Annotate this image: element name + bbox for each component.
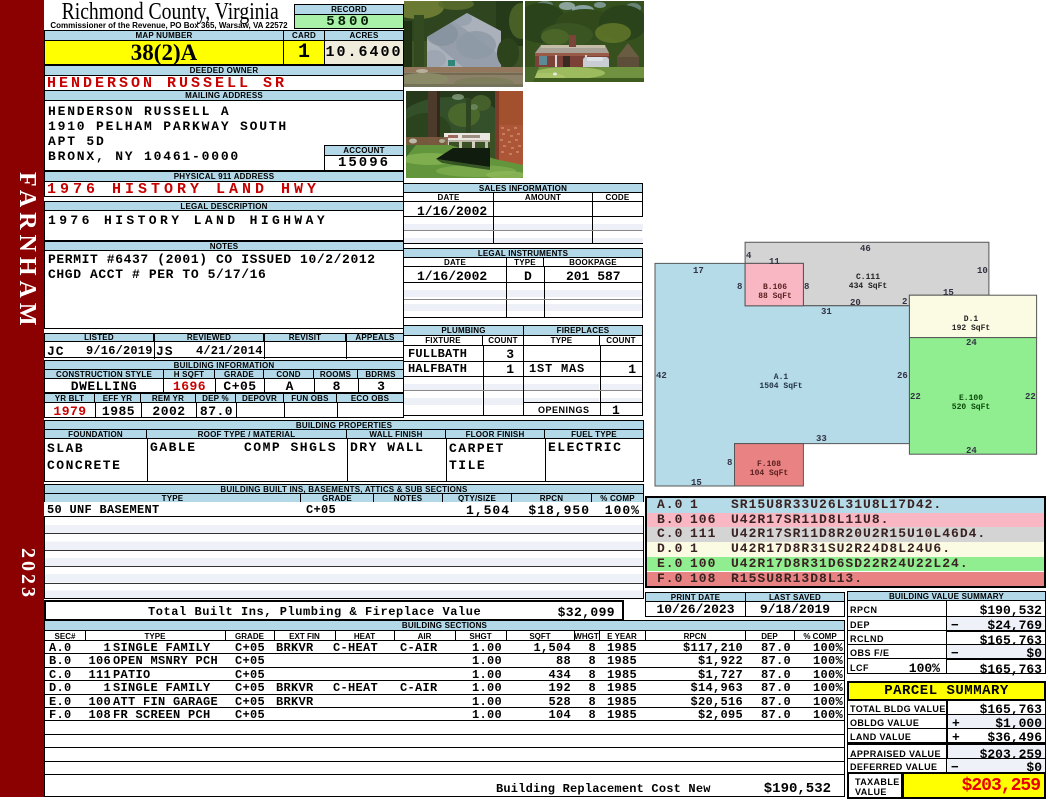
svg-text:B.106: B.106 (763, 283, 787, 292)
svg-text:1504 SqFt: 1504 SqFt (759, 382, 802, 391)
svg-text:4: 4 (746, 251, 752, 261)
svg-text:20: 20 (850, 298, 861, 308)
svg-text:D.1: D.1 (964, 315, 979, 324)
svg-text:520 SqFt: 520 SqFt (952, 403, 991, 412)
svg-text:33: 33 (816, 434, 827, 444)
svg-text:46: 46 (860, 244, 871, 254)
svg-text:15: 15 (691, 478, 702, 488)
svg-text:F.108: F.108 (757, 460, 781, 469)
svg-text:A.1: A.1 (774, 373, 789, 382)
svg-text:104 SqFt: 104 SqFt (750, 469, 789, 478)
svg-text:2: 2 (902, 297, 907, 307)
svg-text:22: 22 (910, 392, 921, 402)
svg-text:192 SqFt: 192 SqFt (952, 324, 991, 333)
svg-text:E.100: E.100 (959, 394, 983, 403)
svg-text:24: 24 (966, 338, 977, 348)
svg-text:8: 8 (727, 458, 732, 468)
svg-text:434 SqFt: 434 SqFt (849, 282, 888, 291)
svg-text:26: 26 (897, 371, 908, 381)
svg-text:C.111: C.111 (856, 273, 880, 282)
svg-text:88 SqFt: 88 SqFt (758, 292, 792, 301)
svg-text:17: 17 (693, 266, 704, 276)
svg-text:10: 10 (977, 266, 988, 276)
svg-text:24: 24 (966, 446, 977, 456)
svg-text:15: 15 (943, 288, 954, 298)
svg-text:42: 42 (656, 371, 667, 381)
svg-text:11: 11 (769, 257, 780, 267)
svg-text:8: 8 (804, 282, 809, 292)
svg-text:8: 8 (737, 282, 742, 292)
svg-text:22: 22 (1025, 392, 1036, 402)
svg-text:31: 31 (821, 307, 832, 317)
